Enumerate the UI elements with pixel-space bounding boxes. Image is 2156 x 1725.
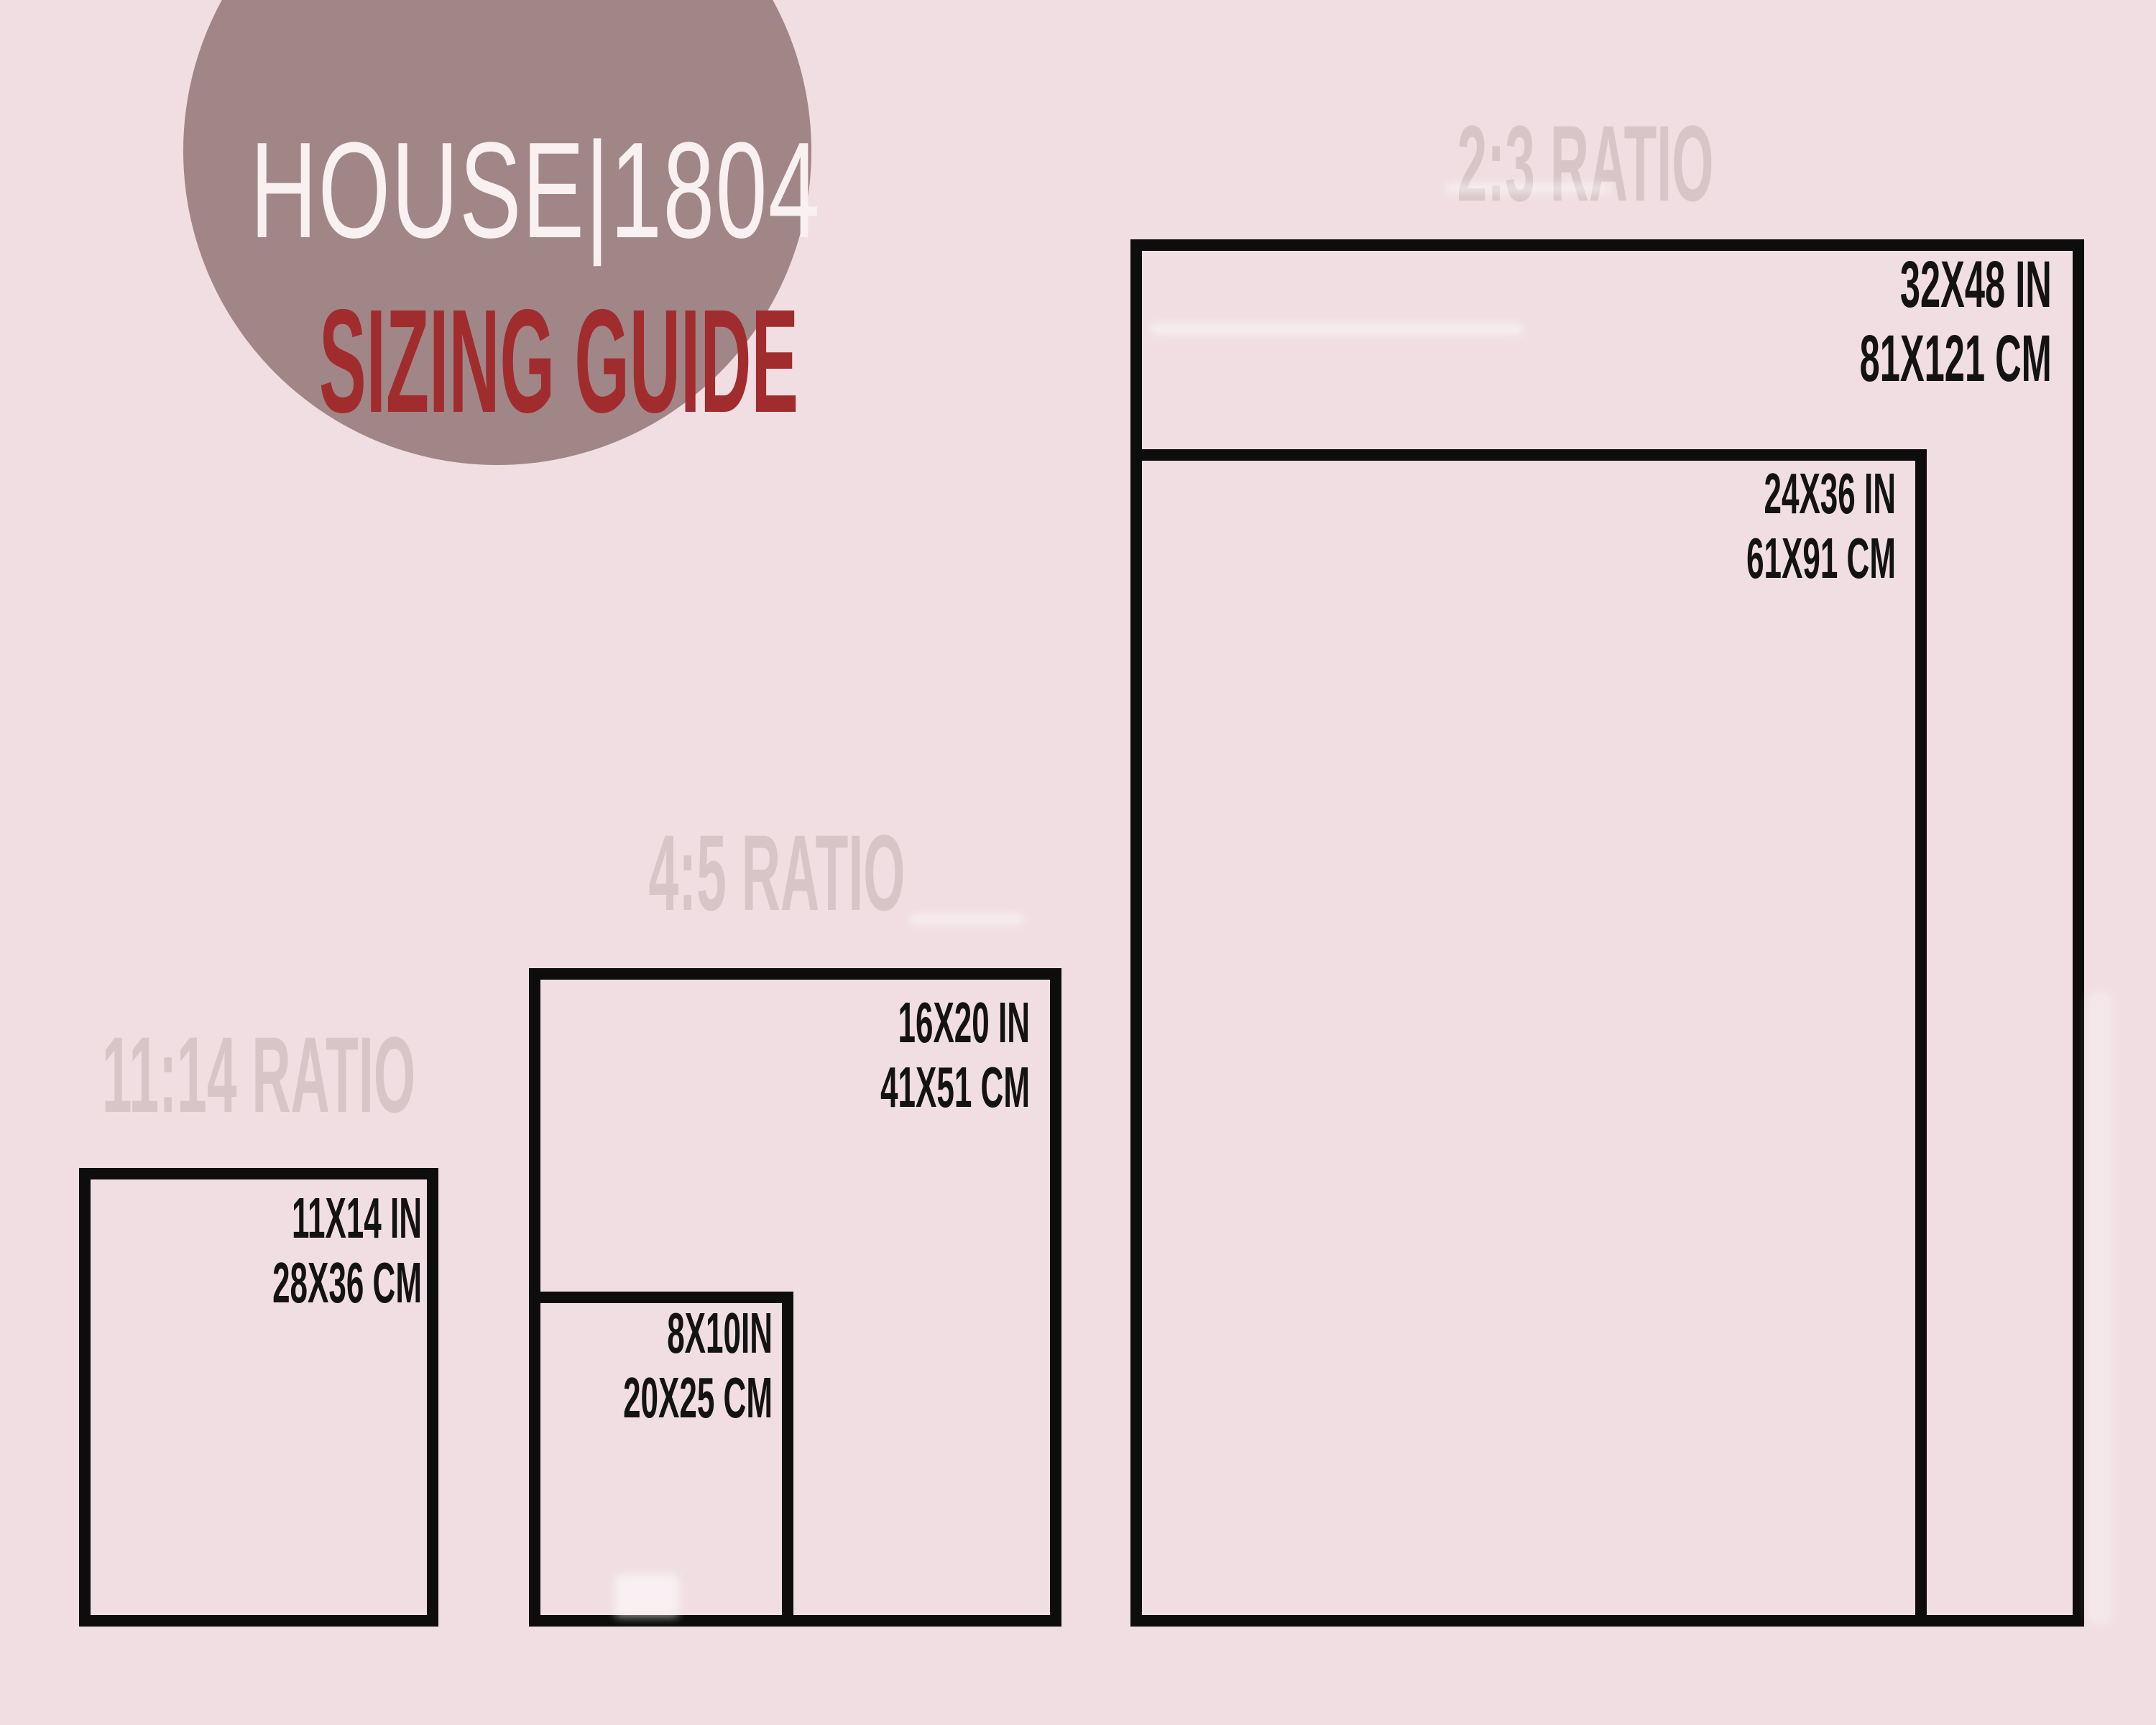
size-label-inches: 11X14 IN — [292, 1186, 422, 1250]
size-label-cm: 61X91 CM — [1746, 526, 1896, 590]
size-label-inches: 32X48 IN — [1900, 248, 2052, 321]
size-label-cm: 41X51 CM — [880, 1055, 1030, 1119]
size-label-cm: 20X25 CM — [623, 1366, 773, 1430]
brand-subtitle: SIZING GUIDE — [319, 287, 664, 435]
ratio-title-11-14: 11:14 RATIO — [79, 1021, 438, 1128]
ratio-title-4-5: 4:5 RATIO — [597, 819, 957, 926]
size-label-11x14: 11X14 IN 28X36 CM — [272, 1186, 422, 1315]
size-label-cm: 28X36 CM — [272, 1251, 422, 1315]
size-label-cm: 81X121 CM — [1860, 322, 2052, 395]
sizing-guide-infographic: HOUSE|1804 SIZING GUIDE 2:3 RATIO 4:5 RA… — [0, 0, 2156, 1725]
size-label-inches: 16X20 IN — [898, 990, 1030, 1054]
size-label-inches: 24X36 IN — [1764, 461, 1896, 525]
size-box-24x36-outline — [1130, 449, 1927, 1627]
artifact-smudge — [2088, 992, 2112, 1624]
size-label-24x36: 24X36 IN 61X91 CM — [1746, 461, 1896, 590]
size-label-16x20: 16X20 IN 41X51 CM — [880, 990, 1030, 1119]
brand-name: HOUSE|1804 — [250, 122, 739, 259]
ratio-title-2-3: 2:3 RATIO — [1406, 109, 1765, 217]
size-label-32x48: 32X48 IN 81X121 CM — [1860, 248, 2052, 396]
size-label-8x10: 8X10IN 20X25 CM — [623, 1301, 773, 1430]
size-label-inches: 8X10IN — [667, 1301, 773, 1365]
